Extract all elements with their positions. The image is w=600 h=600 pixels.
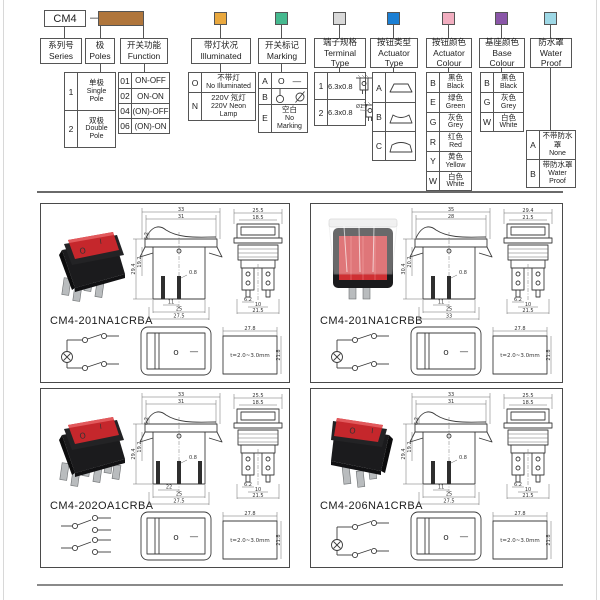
switch-photo: I O bbox=[49, 210, 137, 308]
dim-label: 27.8 bbox=[514, 511, 525, 517]
dim-label: 27.5 bbox=[443, 499, 454, 505]
side-view-drawing: 25.5 18.5 6.2 10 21.5 bbox=[229, 208, 287, 318]
dim-label: 27.8 bbox=[514, 326, 525, 332]
series-code: CM4 bbox=[53, 13, 76, 25]
dim-label: 21.8 bbox=[546, 349, 552, 360]
terminal-drawing-icon bbox=[356, 75, 372, 97]
dim-label: 21.8 bbox=[276, 534, 282, 545]
dim-label: 11 bbox=[438, 300, 444, 306]
dim-label: 25.5 bbox=[252, 208, 263, 214]
dim-label: 27.5 bbox=[173, 314, 184, 320]
dim-label: 6.2 bbox=[144, 232, 150, 240]
face-view-drawing: o — bbox=[409, 324, 483, 378]
option-row: B黑色Black bbox=[481, 73, 523, 92]
dim-label: 21.5 bbox=[522, 493, 533, 499]
option-row: R红色Red bbox=[427, 131, 471, 151]
option-row: B bbox=[259, 88, 307, 104]
panel-cutout-drawing: 27.8 21.8 t=2.0~3.0mm bbox=[219, 511, 285, 563]
series-code-box: CM4 bbox=[44, 10, 86, 27]
dim-label: 27.8 bbox=[244, 326, 255, 332]
option-row: E绿色Green bbox=[427, 92, 471, 112]
front-view-drawing: 35 28 0.8 11 25 33 30.4 20.2 bbox=[403, 206, 495, 324]
actuator-type-header: 按钮类型Actuator Type bbox=[370, 38, 418, 68]
actuator-colour-swatch bbox=[442, 12, 455, 25]
terminal-header: 端子规格Terminal Type bbox=[314, 38, 366, 68]
dim-label: 6.2 bbox=[514, 482, 522, 488]
face-marking-o: o bbox=[173, 348, 179, 358]
dim-label: 29.4 bbox=[522, 208, 533, 214]
option-row: A不带防水罩None bbox=[527, 131, 575, 159]
rocker-concave-icon bbox=[388, 111, 414, 124]
product-panel-1: I O CM4-201NA1CRBA 33 31 0.8 11 25 27.5 … bbox=[40, 203, 290, 383]
dim-label: 18.5 bbox=[252, 400, 263, 406]
dim-label: 11 bbox=[168, 300, 174, 306]
option-row: 04(ON)-OFF bbox=[119, 103, 169, 118]
dim-label: 22 bbox=[166, 485, 172, 491]
illuminated-options-table: O 不带灯No Illuminated N 220V 氖灯220V Neon L… bbox=[188, 72, 256, 121]
panel-thickness-note: t=2.0~3.0mm bbox=[500, 353, 540, 359]
front-view-drawing: 33 31 0.8 11 25 27.5 29.4 19.2 6.2 bbox=[403, 391, 495, 509]
product-panel-3: I O CM4-202OA1CRBA 33 31 0.8 22 25 27.5 … bbox=[40, 388, 290, 568]
water-proof-swatch bbox=[544, 12, 557, 25]
dim-label: 21.8 bbox=[546, 534, 552, 545]
dim-label: 19.2 bbox=[137, 441, 143, 452]
actuator-colour-header: 按钮颜色Actuator Colour bbox=[426, 38, 472, 68]
option-row: C bbox=[373, 131, 415, 160]
option-row: A O— bbox=[259, 73, 307, 88]
option-row: B带防水罩Water Proof bbox=[527, 159, 575, 187]
front-view-drawing: 33 31 0.8 22 25 27.5 29.4 19.2 6.2 bbox=[133, 391, 225, 509]
marking-dash-symbol: — bbox=[293, 76, 302, 86]
product-panel-4: I O CM4-206NA1CRBA 33 31 0.8 11 25 27.5 … bbox=[310, 388, 563, 568]
option-row: G灰色Grey bbox=[481, 92, 523, 112]
face-marking-o: o bbox=[173, 533, 179, 543]
option-row: B黑色Black bbox=[427, 73, 471, 92]
dim-label: 25 bbox=[176, 307, 182, 313]
option-row: O 不带灯No Illuminated bbox=[189, 73, 255, 92]
marking-options-table: A O— B E 空白No Marking bbox=[258, 72, 308, 133]
dim-label: 21.5 bbox=[522, 308, 533, 314]
face-view-drawing: o — bbox=[139, 509, 213, 563]
dim-label: 20.2 bbox=[407, 256, 413, 267]
dim-label: 19.2 bbox=[407, 441, 413, 452]
circuit-schematic-lamp-dpst bbox=[325, 330, 397, 376]
rocker-off-mark: O bbox=[349, 426, 356, 436]
dim-label: 18.5 bbox=[522, 400, 533, 406]
option-row: 2 双极DoublePole bbox=[65, 110, 115, 147]
poles-function-swatch bbox=[98, 11, 144, 26]
dim-label: 31 bbox=[178, 399, 184, 405]
option-row: 1 单极SinglePole bbox=[65, 73, 115, 110]
dim-label: 31 bbox=[448, 399, 454, 405]
rocker-flat-icon bbox=[388, 81, 414, 94]
option-row: 01ON-OFF bbox=[119, 73, 169, 88]
dim-label: 21.5 bbox=[252, 493, 263, 499]
panel-cutout-drawing: 27.8 21.8 t=2.0~3.0mm bbox=[219, 326, 285, 378]
actuator-type-swatch bbox=[387, 12, 400, 25]
function-header: 开关功能Function bbox=[120, 38, 168, 64]
dim-label: 27.5 bbox=[173, 499, 184, 505]
terminal-options-table: 1 6.3x0.8 2 6.3x0.8 Ø1.7 bbox=[314, 72, 366, 126]
option-row: 02ON-ON bbox=[119, 88, 169, 103]
option-row: Y黄色Yellow bbox=[427, 151, 471, 171]
panel-cutout-drawing: 27.8 21.8 t=2.0~3.0mm bbox=[489, 326, 555, 378]
option-row: N 220V 氖灯220V Neon Lamp bbox=[189, 92, 255, 120]
dim-label: 11 bbox=[438, 485, 444, 491]
illuminated-header: 带灯状况Illuminated bbox=[191, 38, 251, 64]
marking-header: 开关标记Marking bbox=[258, 38, 306, 64]
option-row: G灰色Grey bbox=[427, 112, 471, 132]
circuit-schematic-lamp-dpst bbox=[55, 330, 127, 376]
face-marking-dash: — bbox=[190, 347, 199, 357]
face-view-drawing: o — bbox=[409, 509, 483, 563]
circuit-schematic-lamp-dpst bbox=[325, 515, 397, 561]
side-view-drawing: 29.4 21.5 6.2 10 21.5 bbox=[499, 208, 557, 318]
base-colour-swatch bbox=[495, 12, 508, 25]
circuit-schematic-dpdt bbox=[55, 513, 127, 561]
option-row: A bbox=[373, 73, 415, 102]
face-marking-dash: — bbox=[190, 532, 199, 542]
dim-label: 18.5 bbox=[252, 215, 263, 221]
bottom-separator bbox=[37, 584, 563, 586]
dim-label: 33 bbox=[446, 314, 452, 320]
dim-label: 6.2 bbox=[144, 417, 150, 425]
dim-label: 0.8 bbox=[459, 270, 467, 276]
datasheet-page: { "builder": { "series_box": "CM4", "das… bbox=[0, 0, 600, 600]
option-row: 1 6.3x0.8 bbox=[315, 73, 365, 99]
dim-label: 0.8 bbox=[189, 270, 197, 276]
dim-label: 6.2 bbox=[414, 417, 420, 425]
dim-label: 25 bbox=[446, 492, 452, 498]
face-marking-o: o bbox=[443, 348, 449, 358]
terminal-swatch bbox=[333, 12, 346, 25]
face-marking-dash: — bbox=[460, 347, 469, 357]
panel-thickness-note: t=2.0~3.0mm bbox=[230, 538, 270, 544]
product-panel-2: CM4-201NA1CRBB 35 28 0.8 11 25 33 30.4 2… bbox=[310, 203, 563, 383]
dim-label: 33 bbox=[448, 392, 454, 398]
dim-label: 21.5 bbox=[522, 215, 533, 221]
dim-label: 19.2 bbox=[137, 256, 143, 267]
actuator-type-options-table: A B C bbox=[372, 72, 416, 161]
dim-label: 21.8 bbox=[276, 349, 282, 360]
option-row: W白色White bbox=[427, 171, 471, 191]
base-colour-header: 基座颜色Base Colour bbox=[479, 38, 525, 68]
poles-header: 极Poles bbox=[85, 38, 115, 64]
water-proof-header: 防水罩Water Proof bbox=[530, 38, 572, 68]
side-view-drawing: 25.5 18.5 6.2 10 21.5 bbox=[499, 393, 557, 503]
face-marking-dash: — bbox=[460, 532, 469, 542]
option-row: 06(ON)-ON bbox=[119, 118, 169, 133]
page-right-edge bbox=[596, 0, 597, 600]
dim-label: 6.2 bbox=[514, 297, 522, 303]
marking-swatch bbox=[275, 12, 288, 25]
waterproof-cover bbox=[329, 224, 397, 274]
dim-label: 33 bbox=[178, 392, 184, 398]
side-view-drawing: 25.5 18.5 6.2 10 21.5 bbox=[229, 393, 287, 503]
actuator-colour-options-table: B黑色Black E绿色Green G灰色Grey R红色Red Y黄色Yell… bbox=[426, 72, 472, 191]
option-row: 2 6.3x0.8 Ø1.7 bbox=[315, 99, 365, 125]
switch-photo-covered bbox=[319, 210, 407, 308]
front-view-drawing: 33 31 0.8 11 25 27.5 29.4 19.2 6.2 bbox=[133, 206, 225, 324]
poles-options-table: 1 单极SinglePole 2 双极DoublePole bbox=[64, 72, 116, 148]
dim-label: 25.5 bbox=[252, 393, 263, 399]
water-proof-options-table: A不带防水罩None B带防水罩Water Proof bbox=[526, 130, 576, 188]
top-separator bbox=[37, 191, 563, 193]
panel-cutout-drawing: 27.8 21.8 t=2.0~3.0mm bbox=[489, 511, 555, 563]
panel-thickness-note: t=2.0~3.0mm bbox=[500, 538, 540, 544]
option-row: W白色White bbox=[481, 112, 523, 132]
base-colour-options-table: B黑色Black G灰色Grey W白色White bbox=[480, 72, 524, 132]
rocker-convex-icon bbox=[388, 140, 414, 153]
option-row: B bbox=[373, 102, 415, 131]
dim-label: 6.2 bbox=[244, 297, 252, 303]
dim-label: 25 bbox=[446, 307, 452, 313]
series-header: 系列号Series bbox=[40, 38, 82, 64]
switch-photo: I O bbox=[319, 395, 407, 493]
illuminated-swatch bbox=[214, 12, 227, 25]
face-view-drawing: o — bbox=[139, 324, 213, 378]
dim-label: 27.8 bbox=[244, 511, 255, 517]
switch-photo: I O bbox=[49, 395, 137, 493]
dim-label: 25.5 bbox=[522, 393, 533, 399]
page-left-edge bbox=[3, 0, 4, 600]
function-options-table: 01ON-OFF 02ON-ON 04(ON)-OFF 06(ON)-ON bbox=[118, 72, 170, 134]
dim-label: 0.8 bbox=[459, 455, 467, 461]
dim-label: 25 bbox=[176, 492, 182, 498]
panel-thickness-note: t=2.0~3.0mm bbox=[230, 353, 270, 359]
dim-label: 35 bbox=[448, 207, 454, 213]
circle-vertical-line-icon bbox=[274, 89, 286, 104]
marking-circle-symbol: O bbox=[278, 76, 285, 86]
dim-label: 21.5 bbox=[252, 308, 263, 314]
dim-label: 33 bbox=[178, 207, 184, 213]
dim-label: 31 bbox=[178, 214, 184, 220]
option-row: E 空白No Marking bbox=[259, 104, 307, 132]
face-marking-o: o bbox=[443, 533, 449, 543]
circle-diagonal-line-icon bbox=[294, 89, 306, 104]
dim-label: 0.8 bbox=[189, 455, 197, 461]
dim-label: 28 bbox=[448, 214, 454, 220]
dim-label: 6.2 bbox=[244, 482, 252, 488]
